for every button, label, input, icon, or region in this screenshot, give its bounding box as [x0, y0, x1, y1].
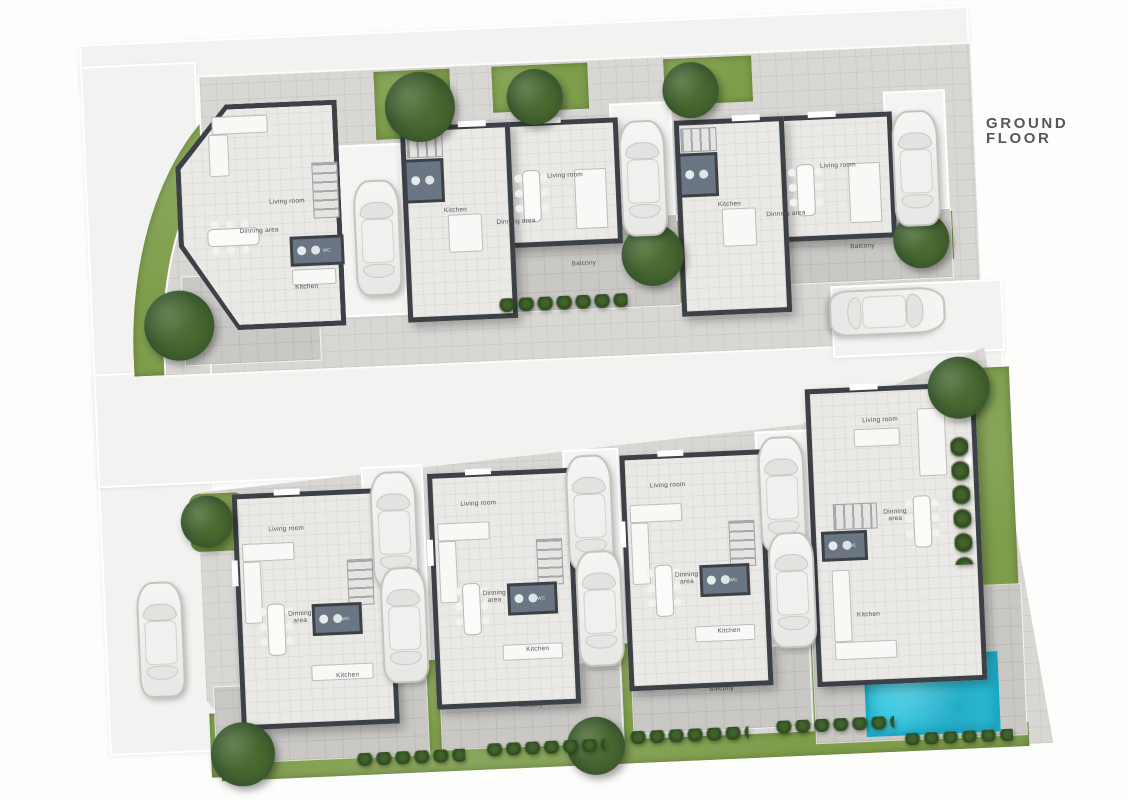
stairs [536, 538, 564, 585]
car [891, 109, 942, 227]
sofa [208, 134, 230, 177]
car [574, 550, 625, 668]
kitchen-counter [835, 640, 898, 661]
wc-fixtures [828, 541, 837, 550]
floor-plan-page: GROUND FLOOR Balcony Balcony Balcony [0, 0, 1128, 800]
wc-room: WC [680, 155, 716, 194]
room-label-kitchen: Kitchen [718, 200, 741, 208]
sofa [630, 503, 683, 523]
sofa [848, 162, 883, 223]
room-label-wc: WC [730, 577, 738, 583]
room-label-kitchen: Kitchen [526, 645, 549, 653]
stairs [680, 127, 717, 153]
window [274, 489, 300, 496]
window [849, 383, 877, 390]
window [619, 521, 626, 547]
wc-fixtures [297, 246, 306, 255]
wc-room: WC [293, 238, 342, 264]
window [427, 540, 434, 566]
wc-room: WC [510, 585, 555, 613]
sofa [437, 521, 490, 541]
wc-room: WC [406, 161, 442, 200]
site-plan: Balcony Balcony Balcony Balcony Balcony [0, 0, 1128, 800]
stairs [311, 162, 339, 219]
room-label-living-room: Living room [650, 481, 686, 490]
car [379, 566, 430, 684]
room-label-living-room: Living room [547, 171, 583, 180]
window [232, 560, 239, 586]
wc-room: WC [702, 566, 747, 594]
room-label-living-room: Living room [862, 416, 898, 425]
sofa [242, 542, 295, 562]
room-label-dining-area: Dinning area [668, 570, 705, 586]
stairs [347, 558, 375, 605]
wc-room: WC [824, 533, 865, 559]
room-label-wc: WC [427, 178, 435, 184]
room-label-dining-area: Dinning area [282, 609, 319, 625]
window [808, 111, 836, 118]
sofa [211, 115, 268, 135]
wc-fixtures [411, 176, 420, 185]
room-label-wc: WC [701, 172, 709, 178]
wc-fixtures [685, 170, 694, 179]
car [767, 531, 818, 649]
dining-table [646, 561, 680, 618]
wc-fixtures [319, 614, 328, 623]
room-label-living-room: Living room [268, 525, 304, 534]
window [458, 120, 486, 127]
room-label-wc: WC [323, 247, 331, 253]
sofa [853, 427, 900, 447]
dining-table [258, 600, 292, 657]
wc-fixtures [707, 575, 716, 584]
kitchen-counter [832, 570, 853, 643]
room-label-kitchen: Kitchen [717, 627, 740, 635]
dining-table [204, 219, 261, 253]
dining-table [454, 580, 488, 637]
room-label-dining-area: Dinning area [476, 589, 513, 605]
room-label-dining-area: Dinning area [877, 507, 914, 523]
wc-fixtures [514, 594, 523, 603]
stairs [728, 520, 756, 567]
kitchen-counter [448, 213, 484, 252]
window [657, 450, 683, 457]
window [465, 468, 491, 475]
balcony-label: Balcony [572, 260, 597, 269]
car [618, 119, 669, 237]
room-label-kitchen: Kitchen [444, 206, 467, 214]
wc-room: WC [315, 605, 360, 633]
room-label-wc: WC [537, 595, 545, 601]
car [135, 581, 186, 699]
room-label-wc: WC [848, 543, 856, 549]
car [828, 286, 946, 337]
stairs [833, 502, 878, 530]
room-label-wc: WC [342, 616, 350, 622]
room-label-kitchen: Kitchen [857, 611, 880, 619]
dining-table [514, 167, 548, 224]
room-label-kitchen: Kitchen [336, 671, 359, 679]
room-label-kitchen: Kitchen [295, 283, 318, 291]
room-label-living-room: Living room [269, 197, 305, 206]
kitchen-counter [722, 207, 758, 246]
room-label-living-room: Living room [820, 161, 856, 170]
car [352, 179, 403, 297]
balcony-label: Balcony [850, 243, 875, 252]
window [732, 114, 760, 121]
sofa [917, 407, 948, 476]
room-label-living-room: Living room [460, 499, 496, 508]
